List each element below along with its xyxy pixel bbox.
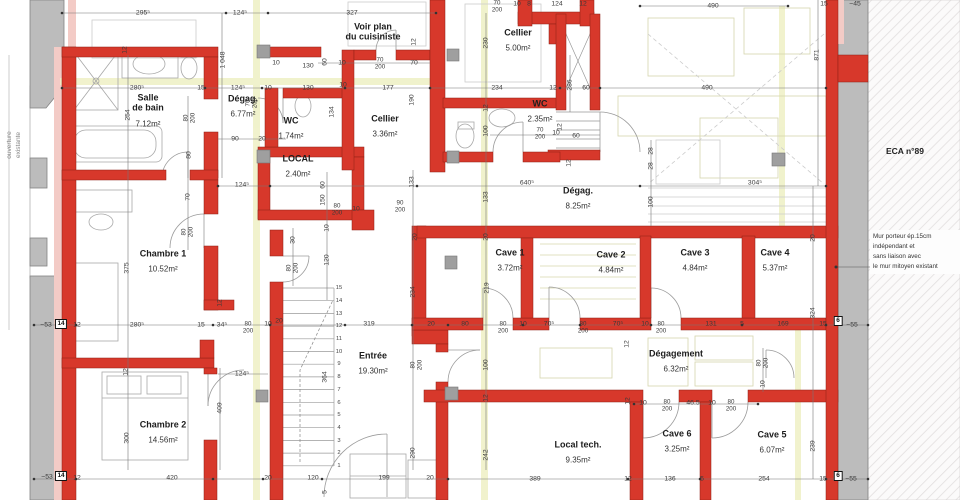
- room-label: WC1.74m²: [279, 116, 304, 145]
- label-layer: Salle de bain7.12m²Dégag.6.77m²WC1.74m²L…: [0, 0, 960, 500]
- dimension-label: 242: [482, 449, 489, 460]
- floor-plan: Salle de bain7.12m²Dégag.6.77m²WC1.74m²L…: [0, 0, 960, 500]
- dimension-label: 12: [216, 299, 223, 307]
- dimension-label: 70⁵: [613, 320, 623, 327]
- dimension-label: ~45: [849, 0, 861, 7]
- stair-step-number: 10: [336, 349, 342, 355]
- dimension-label: 80: [185, 151, 192, 159]
- dimension-label: 10: [338, 59, 346, 66]
- room-label: Dégagement6.32m²: [649, 349, 703, 378]
- dimension-label: 131: [705, 320, 716, 327]
- dimension-label: 80200: [726, 400, 736, 413]
- dimension-label: 15: [820, 0, 828, 7]
- dimension-label: 150: [319, 194, 326, 205]
- dimension-label: 70200: [492, 1, 502, 14]
- dimension-label: 20: [258, 135, 266, 142]
- section-marker: 14: [55, 471, 67, 481]
- dimension-label: 124⁵: [235, 370, 249, 377]
- dimension-label: ~55: [846, 321, 858, 328]
- dimension-label: 130: [302, 84, 313, 91]
- dimension-label: 177: [382, 84, 393, 91]
- dimension-label: 12: [482, 104, 489, 112]
- dimension-label: 10: [708, 399, 716, 406]
- dimension-label: 70: [184, 193, 191, 201]
- room-label: Entrée19.30m²: [358, 351, 387, 380]
- dimension-label: 70200: [375, 58, 385, 71]
- dimension-label: 490: [707, 2, 718, 9]
- dimension-label: ~53: [40, 321, 52, 328]
- dimension-label: 70⁵: [544, 320, 554, 327]
- dimension-label: 10: [352, 205, 360, 212]
- stair-step-number: 15: [336, 285, 342, 291]
- dimension-label: 90200: [395, 201, 405, 214]
- dimension-label: 20: [427, 320, 435, 327]
- dimension-label: 5: [700, 475, 704, 482]
- dimension-label: 10: [513, 0, 521, 7]
- stair-step-number: 7: [337, 387, 340, 393]
- dimension-label: 60: [582, 84, 590, 91]
- dimension-label: 254: [124, 109, 131, 120]
- dimension-label: 100: [482, 359, 489, 370]
- dimension-label: 124⁵: [235, 181, 249, 188]
- room-label: Voir plan du cuisiniste: [345, 22, 400, 43]
- dimension-label: 20: [809, 234, 816, 242]
- room-label: Local tech.9.35m²: [554, 440, 601, 469]
- room-label: WC2.35m²: [528, 99, 553, 128]
- dimension-label: 80200: [184, 113, 197, 123]
- dimension-label: 20: [264, 474, 272, 481]
- room-label: Cellier5.00m²: [504, 28, 532, 57]
- dimension-label: 60: [319, 181, 326, 189]
- dimension-label: 295⁵: [136, 9, 150, 16]
- dimension-label: 327: [346, 9, 357, 16]
- dimension-label: 80200: [498, 322, 508, 335]
- existing-opening-note: ouverture existante: [5, 131, 23, 158]
- dimension-label: 20: [275, 317, 283, 324]
- dimension-label: 80200: [411, 360, 424, 370]
- dimension-label: 80200: [656, 322, 666, 335]
- dimension-label: 640⁵: [520, 179, 534, 186]
- dimension-label: 12: [121, 46, 128, 54]
- dimension-label: 28: [647, 147, 654, 155]
- dimension-label: 80200: [662, 400, 672, 413]
- dimension-label: 5: [740, 320, 744, 327]
- dimension-label: 80200: [332, 204, 342, 217]
- dimension-label: 324: [809, 307, 816, 318]
- dimension-label: 100: [482, 125, 489, 136]
- room-label: Cave 45.37m²: [760, 248, 789, 277]
- section-marker: 6: [834, 316, 843, 326]
- dimension-label: 871: [813, 49, 820, 60]
- dimension-label: 12: [482, 394, 489, 402]
- dimension-label: 80200: [287, 263, 300, 273]
- room-label: LOCAL2.40m²: [283, 154, 314, 183]
- dimension-label: 234: [409, 286, 416, 297]
- dimension-label: 169: [777, 320, 788, 327]
- dimension-label: ~55: [845, 475, 857, 482]
- room-label: Chambre 214.56m²: [140, 420, 187, 449]
- section-marker: 14: [55, 319, 67, 329]
- dimension-label: 28: [647, 162, 654, 170]
- dimension-label: 133: [482, 191, 489, 202]
- dimension-label: 90: [231, 135, 239, 142]
- dimension-label: 10: [519, 320, 527, 327]
- dimension-label: 12: [73, 321, 81, 328]
- dimension-label: 20: [426, 474, 434, 481]
- dimension-label: 20: [482, 233, 489, 241]
- dimension-label: 199: [378, 474, 389, 481]
- wall-note: Mur porteur ép.15cm indépendant et sans …: [870, 230, 960, 274]
- dimension-label: 10: [641, 320, 649, 327]
- dimension-label: 286: [566, 79, 573, 90]
- dimension-label: 230: [482, 37, 489, 48]
- dimension-label: 1 048: [219, 51, 226, 68]
- dimension-label: 234: [491, 84, 502, 91]
- section-marker: 6: [834, 471, 843, 481]
- dimension-label: 80200: [243, 322, 253, 335]
- dimension-label: 280⁵: [130, 84, 144, 91]
- dimension-label: 304⁵: [748, 179, 762, 186]
- dimension-label: 15: [197, 84, 205, 91]
- dimension-label: 20: [411, 233, 418, 241]
- dimension-label: 124⁵: [233, 9, 247, 16]
- dimension-label: 130: [302, 62, 313, 69]
- dimension-label: ~53: [41, 473, 53, 480]
- stair-step-number: 14: [336, 298, 342, 304]
- stair-step-number: 6: [337, 400, 340, 406]
- stair-step-number: 1: [337, 463, 340, 469]
- dimension-label: 12: [556, 123, 563, 131]
- dimension-label: 12: [73, 474, 81, 481]
- dimension-label: 80200: [578, 322, 588, 335]
- eca-parcel-label: ECA n°89: [886, 146, 924, 156]
- dimension-label: 60: [572, 132, 580, 139]
- dimension-label: 12: [122, 368, 129, 376]
- dimension-label: 254: [758, 475, 769, 482]
- dimension-label: 319: [363, 320, 374, 327]
- room-label: Dégag.8.25m²: [563, 186, 593, 215]
- stair-step-number: 12: [336, 323, 342, 329]
- dimension-label: 136: [664, 475, 675, 482]
- stair-step-number: 4: [337, 425, 340, 431]
- dimension-label: 100: [647, 196, 654, 207]
- room-label: Cave 63.25m²: [662, 429, 691, 458]
- dimension-label: 12: [549, 84, 557, 91]
- dimension-label: 219: [483, 282, 490, 293]
- dimension-label: 409: [216, 402, 223, 413]
- stair-step-number: 2: [337, 450, 340, 456]
- dimension-label: 133: [408, 176, 415, 187]
- dimension-label: 70: [410, 59, 418, 66]
- stair-step-number: 3: [337, 438, 340, 444]
- dimension-label: 12: [410, 38, 417, 46]
- dimension-label: 120: [323, 254, 330, 265]
- dimension-label: 124: [551, 0, 562, 7]
- dimension-label: 290: [409, 447, 416, 458]
- dimension-label: 12: [579, 0, 587, 7]
- dimension-label: 420: [166, 474, 177, 481]
- dimension-label: 190: [408, 94, 415, 105]
- dimension-label: 46.5: [686, 399, 699, 406]
- dimension-label: 15: [819, 320, 827, 327]
- dimension-label: 10: [339, 81, 347, 88]
- dimension-label: 10: [759, 380, 766, 388]
- room-label: Cave 56.07m²: [757, 430, 786, 459]
- stair-step-number: 13: [336, 311, 342, 317]
- dimension-label: 124⁵: [231, 84, 245, 91]
- dimension-label: 120: [307, 474, 318, 481]
- room-label: Chambre 110.52m²: [140, 249, 187, 278]
- dimension-label: 12: [624, 397, 631, 405]
- dimension-label: 12: [565, 159, 572, 167]
- dimension-label: 280⁵: [130, 321, 144, 328]
- dimension-label: 10: [264, 320, 272, 327]
- stair-step-number: 9: [337, 361, 340, 367]
- dimension-label: 12: [623, 340, 630, 348]
- dimension-label: 15: [197, 321, 205, 328]
- dimension-label: 70200: [246, 98, 259, 108]
- dimension-label: 10: [272, 59, 280, 66]
- dimension-label: 60: [321, 58, 328, 66]
- dimension-label: 10: [264, 84, 272, 91]
- dimension-label: 364: [321, 371, 328, 382]
- dimension-label: 30: [289, 236, 296, 244]
- dimension-label: 389: [529, 475, 540, 482]
- stair-step-number: 8: [337, 374, 340, 380]
- dimension-label: 134: [328, 106, 335, 117]
- dimension-label: 375: [123, 262, 130, 273]
- stair-step-number: 11: [336, 336, 342, 342]
- dimension-label: 5: [321, 490, 328, 494]
- dimension-label: 8: [527, 0, 531, 7]
- dimension-label: 70200: [535, 128, 545, 141]
- dimension-label: 10: [323, 224, 330, 232]
- room-label: Cave 34.84m²: [680, 248, 709, 277]
- dimension-label: 80200: [757, 358, 770, 368]
- dimension-label: 12: [624, 475, 632, 482]
- room-label: Salle de bain7.12m²: [132, 92, 164, 131]
- stair-step-number: 5: [337, 412, 340, 418]
- room-label: Cave 13.72m²: [495, 248, 524, 277]
- room-label: Cellier3.36m²: [371, 114, 399, 143]
- dimension-label: 300: [123, 432, 130, 443]
- dimension-label: 490: [701, 84, 712, 91]
- room-label: Cave 24.84m²: [596, 250, 625, 279]
- dimension-label: 80: [461, 320, 469, 327]
- dimension-label: 10: [639, 399, 647, 406]
- dimension-label: 15: [819, 475, 827, 482]
- dimension-label: 239: [809, 440, 816, 451]
- dimension-label: 34⁵: [217, 321, 227, 328]
- dimension-label: 80200: [182, 227, 195, 237]
